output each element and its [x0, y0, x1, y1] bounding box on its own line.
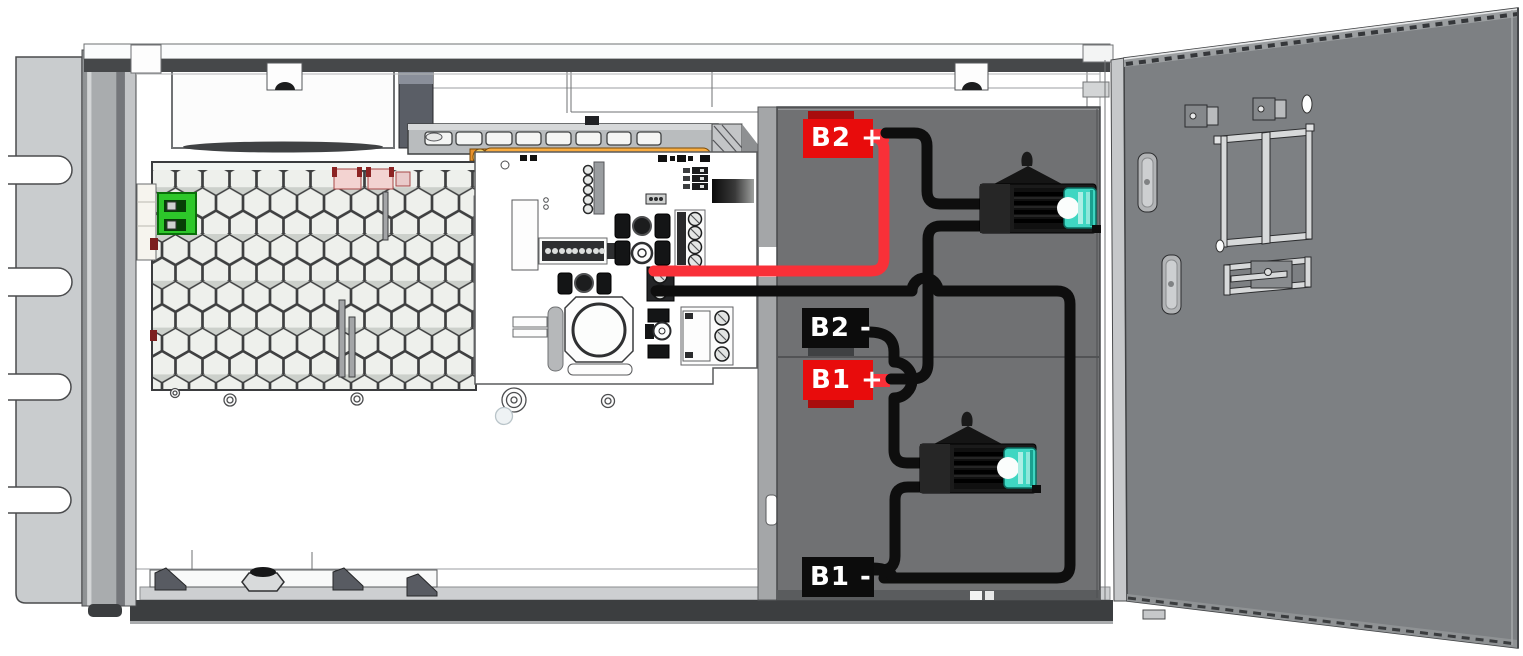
spacer-bar	[568, 364, 632, 375]
battery-wiring-diagram: B2 + B2 - B1 + B1 -	[0, 0, 1523, 656]
heatsink	[712, 179, 754, 203]
fuse-clip-pair-c	[558, 273, 611, 294]
standoff	[548, 307, 563, 371]
battery-terminal-label-b2-plus: B2 +	[803, 119, 873, 158]
retainer-tab-icon	[955, 63, 988, 90]
terminal-block-3	[681, 307, 733, 365]
retainer-tab-icon	[267, 63, 302, 90]
terminal-block-4	[675, 210, 705, 268]
fuse-clip-pair-b	[615, 241, 670, 265]
relay	[512, 200, 538, 270]
battery-terminal-label-b1-plus: B1 +	[803, 360, 873, 400]
door-pill-bracket-icon	[1162, 255, 1181, 314]
left-mounting-flange	[8, 57, 82, 603]
door-pill-bracket-icon	[1138, 153, 1157, 212]
fuse-clip-pair-a	[615, 214, 670, 238]
door-oval-hole	[1302, 95, 1312, 113]
capacitor	[565, 297, 633, 362]
door-round-hole	[1216, 240, 1224, 252]
green-terminal-connector	[158, 193, 196, 234]
power-supply	[152, 162, 476, 390]
compartment-partition	[758, 107, 778, 600]
dip-switches	[683, 167, 708, 190]
cabinet-door	[1111, 8, 1518, 648]
battery-terminal-label-b1-minus: B1 -	[802, 557, 874, 597]
diagram-canvas	[0, 0, 1523, 656]
chassis-left-wall	[82, 50, 136, 617]
door-inner-face	[1124, 8, 1518, 648]
terminal-strip	[539, 238, 616, 264]
fuse-holder-vertical	[645, 309, 671, 358]
door-clip-icon	[1253, 98, 1286, 120]
three-pin-header	[646, 194, 666, 204]
pin-header	[584, 162, 605, 214]
battery-terminal-label-b2-minus: B2 -	[802, 308, 869, 348]
door-clip-icon	[1185, 105, 1218, 127]
